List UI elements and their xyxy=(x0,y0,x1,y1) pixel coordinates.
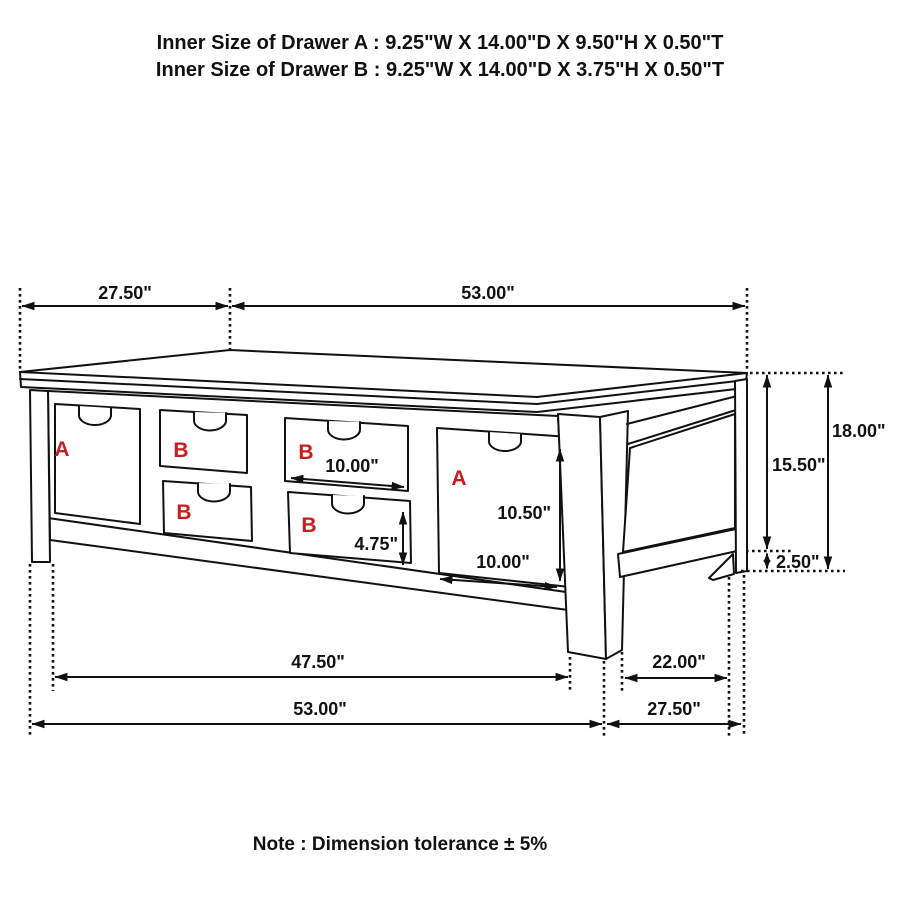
drawer-letter-b1-bottom: B xyxy=(176,501,191,524)
drawer-a-left-handle xyxy=(79,406,111,425)
dim-label-bottom-length: 53.00" xyxy=(293,699,347,719)
dim-label-inner-b-height: 4.75" xyxy=(354,534,398,554)
dim-label-bottom-depth: 27.50" xyxy=(647,699,701,719)
drawer-letter-b2-top: B xyxy=(298,441,313,464)
drawer-letter-a-left: A xyxy=(54,438,69,461)
dim-label-top-length: 53.00" xyxy=(461,283,515,303)
dim-label-height-upper: 15.50" xyxy=(772,455,826,475)
drawer-b1-top-handle xyxy=(194,412,226,431)
drawer-letter-b2-bottom: B xyxy=(301,514,316,537)
dim-label-foot-height: 2.50" xyxy=(776,552,820,572)
furniture-line-drawing: 27.50" 53.00" 18.00" 15.50" 2.50" 10.00"… xyxy=(0,0,900,900)
tabletop-edge-left-close xyxy=(20,372,21,387)
side-panel xyxy=(623,414,735,552)
dim-label-inner-b-width: 10.00" xyxy=(325,456,379,476)
dim-label-bottom-front-span: 47.50" xyxy=(291,652,345,672)
drawer-b2-top-handle xyxy=(328,421,360,440)
tolerance-note: Note : Dimension tolerance ± 5% xyxy=(0,834,800,856)
drawer-letter-b1-top: B xyxy=(173,439,188,462)
tabletop-surface xyxy=(20,350,747,397)
drawer-b1-bottom-handle xyxy=(198,483,230,502)
front-left-leg xyxy=(30,390,50,562)
rear-right-leg xyxy=(735,379,747,573)
dim-label-inner-a-height: 10.50" xyxy=(497,503,551,523)
front-right-leg-front xyxy=(558,414,606,659)
dimension-diagram-page: Inner Size of Drawer A : 9.25"W X 14.00"… xyxy=(0,0,900,900)
dim-label-bottom-right-span: 22.00" xyxy=(652,652,706,672)
dim-label-top-overhang: 27.50" xyxy=(98,283,152,303)
rear-right-leg-foot xyxy=(709,554,734,580)
dim-label-height-total: 18.00" xyxy=(832,421,886,441)
dim-label-inner-a-width: 10.00" xyxy=(476,552,530,572)
drawer-letter-a-right: A xyxy=(451,467,466,490)
drawer-a-right-handle xyxy=(489,432,521,451)
drawer-b2-bottom-handle xyxy=(332,495,364,514)
